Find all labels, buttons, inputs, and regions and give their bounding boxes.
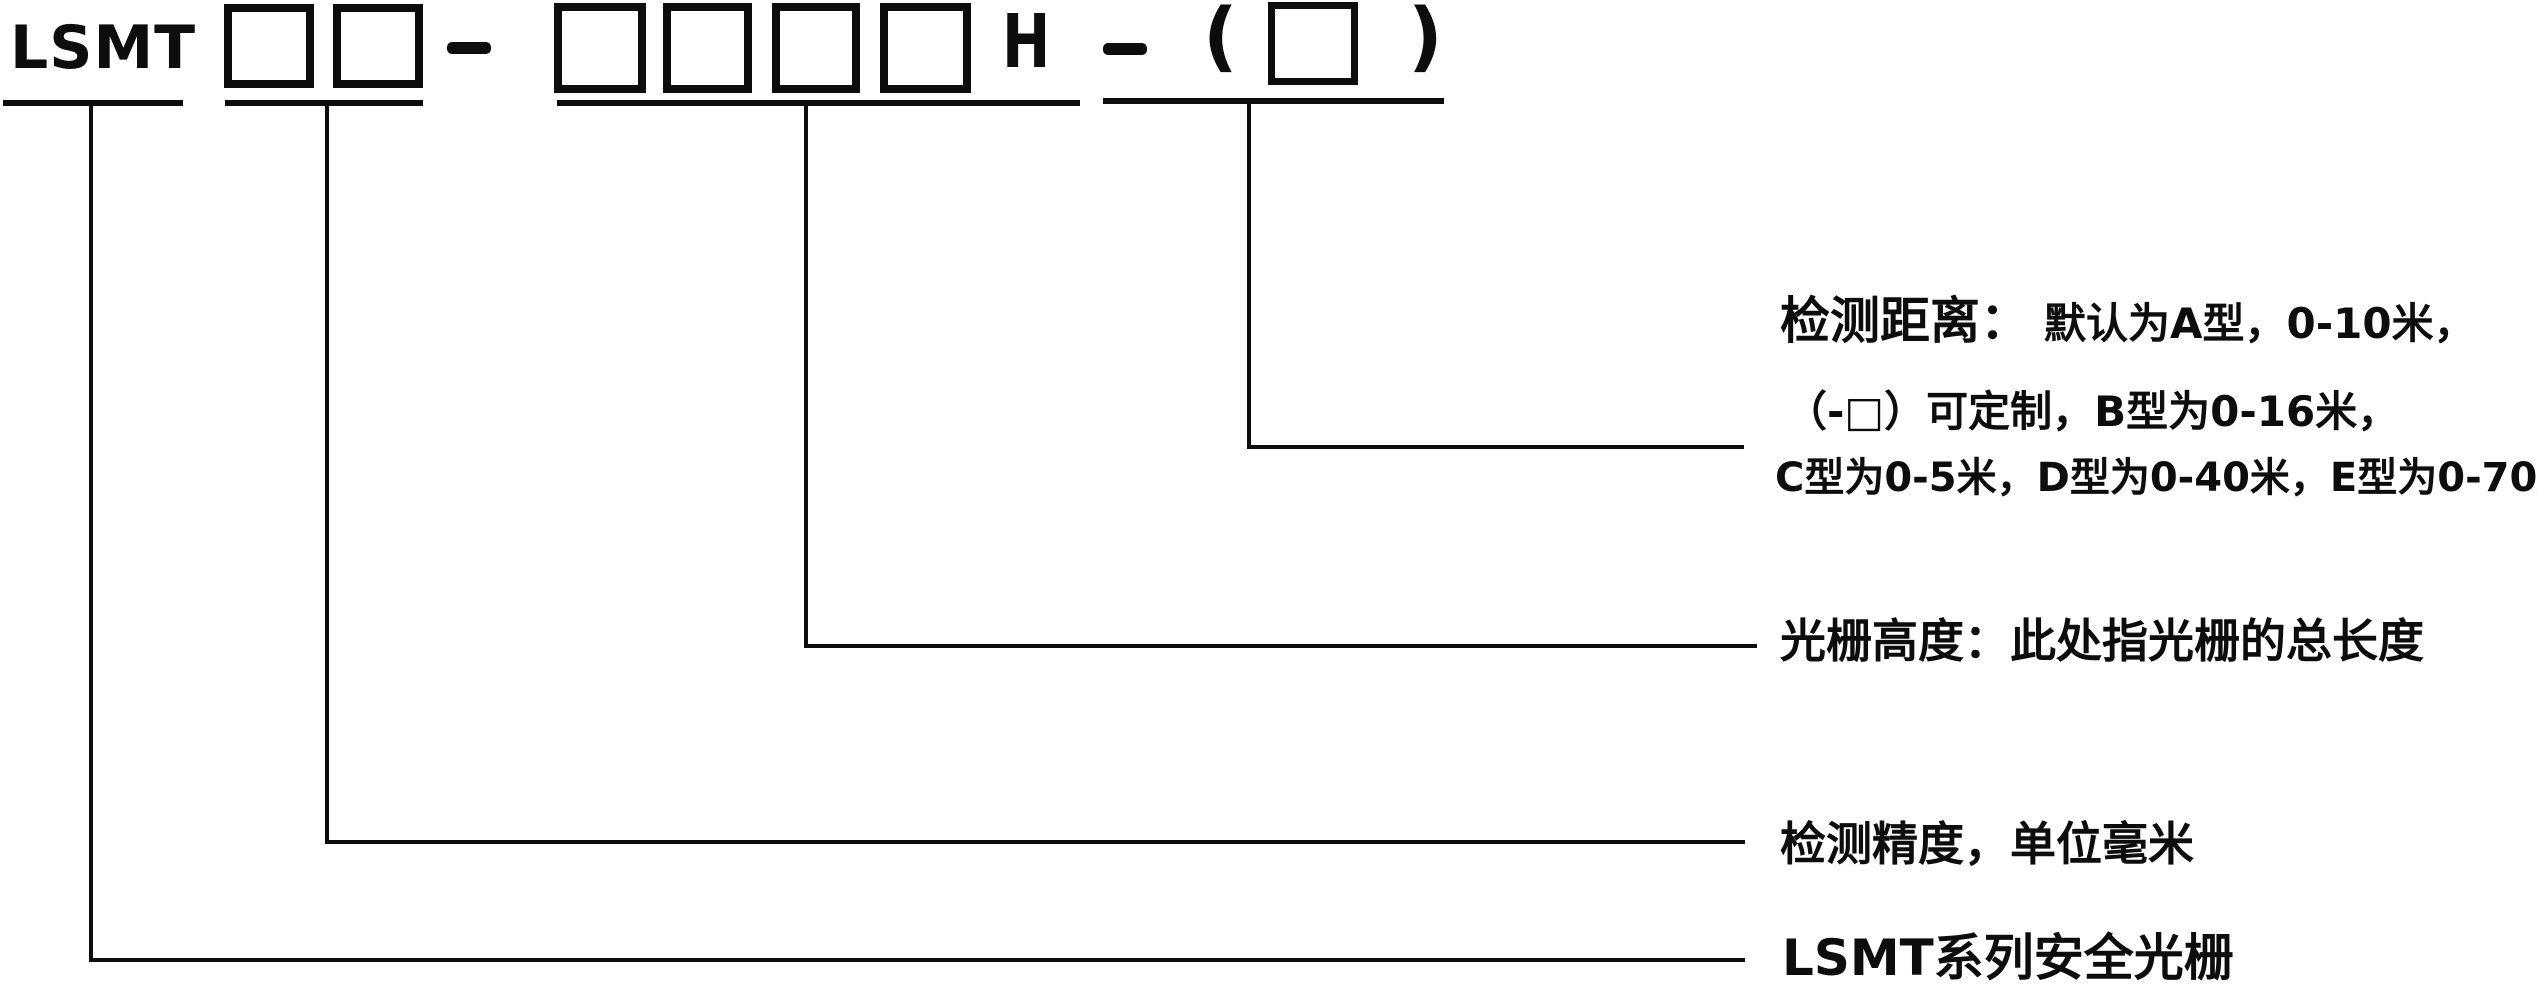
underline-height-segment [557, 100, 1080, 106]
height-digit-box-4 [880, 3, 971, 93]
label-detection-distance-head: 检测距离： [1780, 292, 2030, 350]
paren-close: ) [1408, 0, 1443, 80]
connector-distance-horizontal [1247, 445, 1744, 449]
connector-accuracy-horizontal [325, 840, 1745, 844]
label-grating-height: 光栅高度：此处指光栅的总长度 [1780, 615, 2424, 668]
paren-open: ( [1203, 0, 1238, 80]
height-suffix-letter: H [1002, 12, 1050, 72]
label-detection-distance-line2: （-□）可定制，B型为0-16米， [1785, 388, 2399, 436]
underline-distance-segment [1103, 98, 1444, 104]
label-detection-accuracy: 检测精度，单位毫米 [1780, 818, 2194, 871]
underline-series-segment [3, 100, 183, 106]
connector-height-horizontal [804, 644, 1757, 648]
height-digit-box-3 [772, 3, 860, 93]
separator-dash-2 [1103, 43, 1147, 55]
separator-dash-1 [447, 42, 491, 54]
connector-distance-vertical [1247, 104, 1251, 449]
label-detection-distance-line3: C型为0-5米，D型为0-40米，E型为0-70米 [1775, 455, 2538, 501]
connector-series-horizontal [89, 958, 1745, 962]
height-digit-box-1 [554, 3, 646, 93]
label-series-name: LSMT系列安全光栅 [1782, 930, 2234, 988]
model-nomenclature-diagram: LSMT H ( ) 检测距离：默认为A型，0-10米， （-□）可定制，B型为… [0, 0, 2538, 988]
height-digit-box-2 [663, 3, 752, 93]
series-prefix-text: LSMT [10, 8, 196, 88]
connector-height-vertical [804, 106, 808, 648]
accuracy-digit-box-1 [224, 4, 314, 88]
connector-series-vertical [89, 106, 93, 962]
connector-accuracy-vertical [325, 106, 329, 844]
accuracy-digit-box-2 [333, 4, 423, 88]
underline-accuracy-segment [225, 100, 423, 106]
label-detection-distance-line1-rest: 默认为A型，0-10米， [2044, 299, 2476, 348]
label-detection-distance-line1: 检测距离：默认为A型，0-10米， [1780, 293, 2476, 351]
distance-type-box [1268, 2, 1358, 85]
